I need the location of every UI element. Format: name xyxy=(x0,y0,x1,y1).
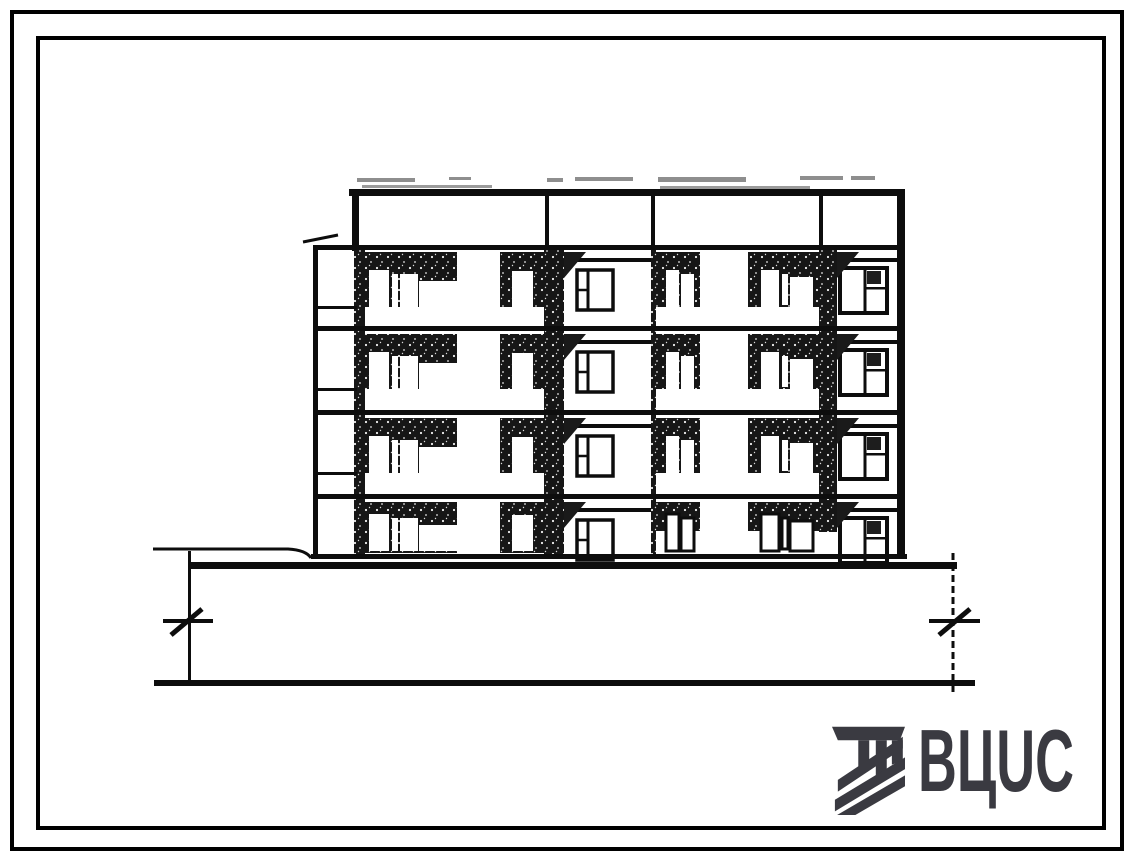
construction-hatch-logo-icon xyxy=(832,727,905,815)
end-wall xyxy=(313,247,318,554)
elevation-drawing-canvas: ВЦUС xyxy=(0,0,1134,863)
window-opening xyxy=(400,356,418,389)
publisher-logo-text: ВЦUС xyxy=(918,711,1074,810)
window-opening xyxy=(782,356,788,387)
window-opening xyxy=(790,277,813,307)
wing-parapet-line xyxy=(313,472,357,475)
floor-slab-line xyxy=(313,410,905,415)
wall-pier xyxy=(354,250,365,554)
window-opening xyxy=(790,443,813,473)
illegible-annotation-mark xyxy=(800,176,843,180)
window-opening xyxy=(392,518,398,551)
eaves-tick xyxy=(303,235,338,242)
window-opening xyxy=(782,440,788,471)
window-opening xyxy=(392,440,398,474)
parapet-joint-line xyxy=(545,194,549,247)
window-opening xyxy=(790,521,813,551)
wing-parapet-line xyxy=(313,306,357,309)
publisher-logo: ВЦUС xyxy=(832,711,1074,815)
window-opening xyxy=(782,518,788,549)
window-opening xyxy=(666,270,679,308)
window-opening xyxy=(512,271,533,310)
parapet-joint-line xyxy=(819,194,823,247)
window-opening xyxy=(392,274,398,308)
window-opening xyxy=(512,353,533,392)
window-opening xyxy=(681,356,694,390)
facade-elevation xyxy=(153,176,980,692)
window-opening xyxy=(419,281,457,307)
window-opening xyxy=(369,436,389,474)
window-opening xyxy=(681,518,694,551)
illegible-annotation-mark xyxy=(658,177,746,182)
roof-fringe-mark xyxy=(362,185,492,188)
window-opening xyxy=(419,447,457,473)
building-base-line xyxy=(311,554,907,559)
window-opening xyxy=(419,363,457,389)
wing-parapet-line xyxy=(313,388,357,391)
window-opening xyxy=(419,525,457,551)
illegible-annotation-mark xyxy=(449,177,471,180)
window-opening xyxy=(666,514,679,551)
illegible-annotation-mark xyxy=(547,178,563,182)
building-right-edge xyxy=(897,189,905,554)
window-opening xyxy=(512,437,533,476)
window-opening xyxy=(666,436,679,474)
vent-pane xyxy=(867,521,881,534)
window-opening xyxy=(782,274,788,305)
window-opening xyxy=(761,270,779,308)
roof-fringe-mark xyxy=(660,186,810,189)
window-opening xyxy=(681,440,694,474)
window-opening xyxy=(512,515,533,551)
floor-slab-line xyxy=(313,494,905,499)
parapet-joint-line xyxy=(651,194,655,247)
floor-slab-line xyxy=(313,326,905,331)
ground-line-left xyxy=(153,549,311,558)
wall-pier xyxy=(544,250,564,554)
window-opening xyxy=(666,352,679,390)
plinth-top-line xyxy=(190,562,957,569)
window-opening xyxy=(681,274,694,308)
vent-pane xyxy=(867,353,881,366)
drawing-sheet: ВЦUС xyxy=(0,0,1134,863)
parapet-bottom-line xyxy=(313,245,905,250)
window-opening xyxy=(400,274,418,307)
window-opening xyxy=(369,352,389,390)
vent-pane xyxy=(867,437,881,450)
window-opening xyxy=(790,359,813,389)
wall-pier xyxy=(651,250,656,554)
illegible-annotation-mark xyxy=(575,177,633,181)
window-opening xyxy=(761,436,779,474)
building-left-edge xyxy=(352,189,359,251)
window-opening xyxy=(400,518,418,551)
window-opening xyxy=(369,270,389,308)
window-opening xyxy=(392,356,398,390)
illegible-annotation-mark xyxy=(851,176,875,180)
vent-pane xyxy=(867,271,881,284)
wall-pier xyxy=(819,250,837,532)
illegible-annotation-mark xyxy=(357,178,415,182)
window-opening xyxy=(761,352,779,390)
window-opening xyxy=(369,514,389,551)
window-opening xyxy=(400,440,418,473)
window-opening xyxy=(761,514,779,551)
plinth-bottom-line xyxy=(154,680,975,686)
